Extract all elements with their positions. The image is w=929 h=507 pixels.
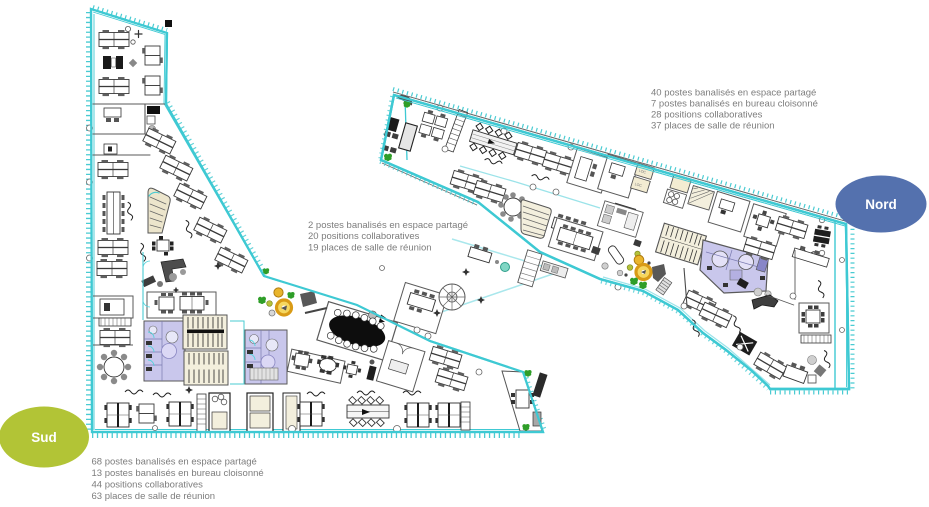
svg-text:63 places de salle de réunion: 63 places de salle de réunion: [92, 491, 216, 502]
svg-text:2 postes banalisés en espace p: 2 postes banalisés en espace partagé: [308, 220, 468, 231]
svg-text:37 places de salle de réunion: 37 places de salle de réunion: [651, 121, 775, 132]
svg-text:68 postes banalisés en espace: 68 postes banalisés en espace partagé: [92, 456, 257, 467]
svg-text:Nord: Nord: [865, 197, 897, 212]
svg-text:Sud: Sud: [31, 430, 57, 445]
svg-text:19 places de salle de réunion: 19 places de salle de réunion: [308, 242, 432, 253]
svg-text:7 postes banalisés en bureau c: 7 postes banalisés en bureau cloisonné: [651, 98, 818, 109]
svg-text:13 postes banalisés en bureau: 13 postes banalisés en bureau cloisonné: [92, 468, 264, 479]
svg-text:28 positions collaboratives: 28 positions collaboratives: [651, 110, 763, 121]
svg-text:40 postes banalisés en espace: 40 postes banalisés en espace partagé: [651, 87, 816, 98]
svg-text:44 positions collaboratives: 44 positions collaboratives: [92, 480, 204, 491]
svg-text:20 positions collaboratives: 20 positions collaboratives: [308, 231, 420, 242]
